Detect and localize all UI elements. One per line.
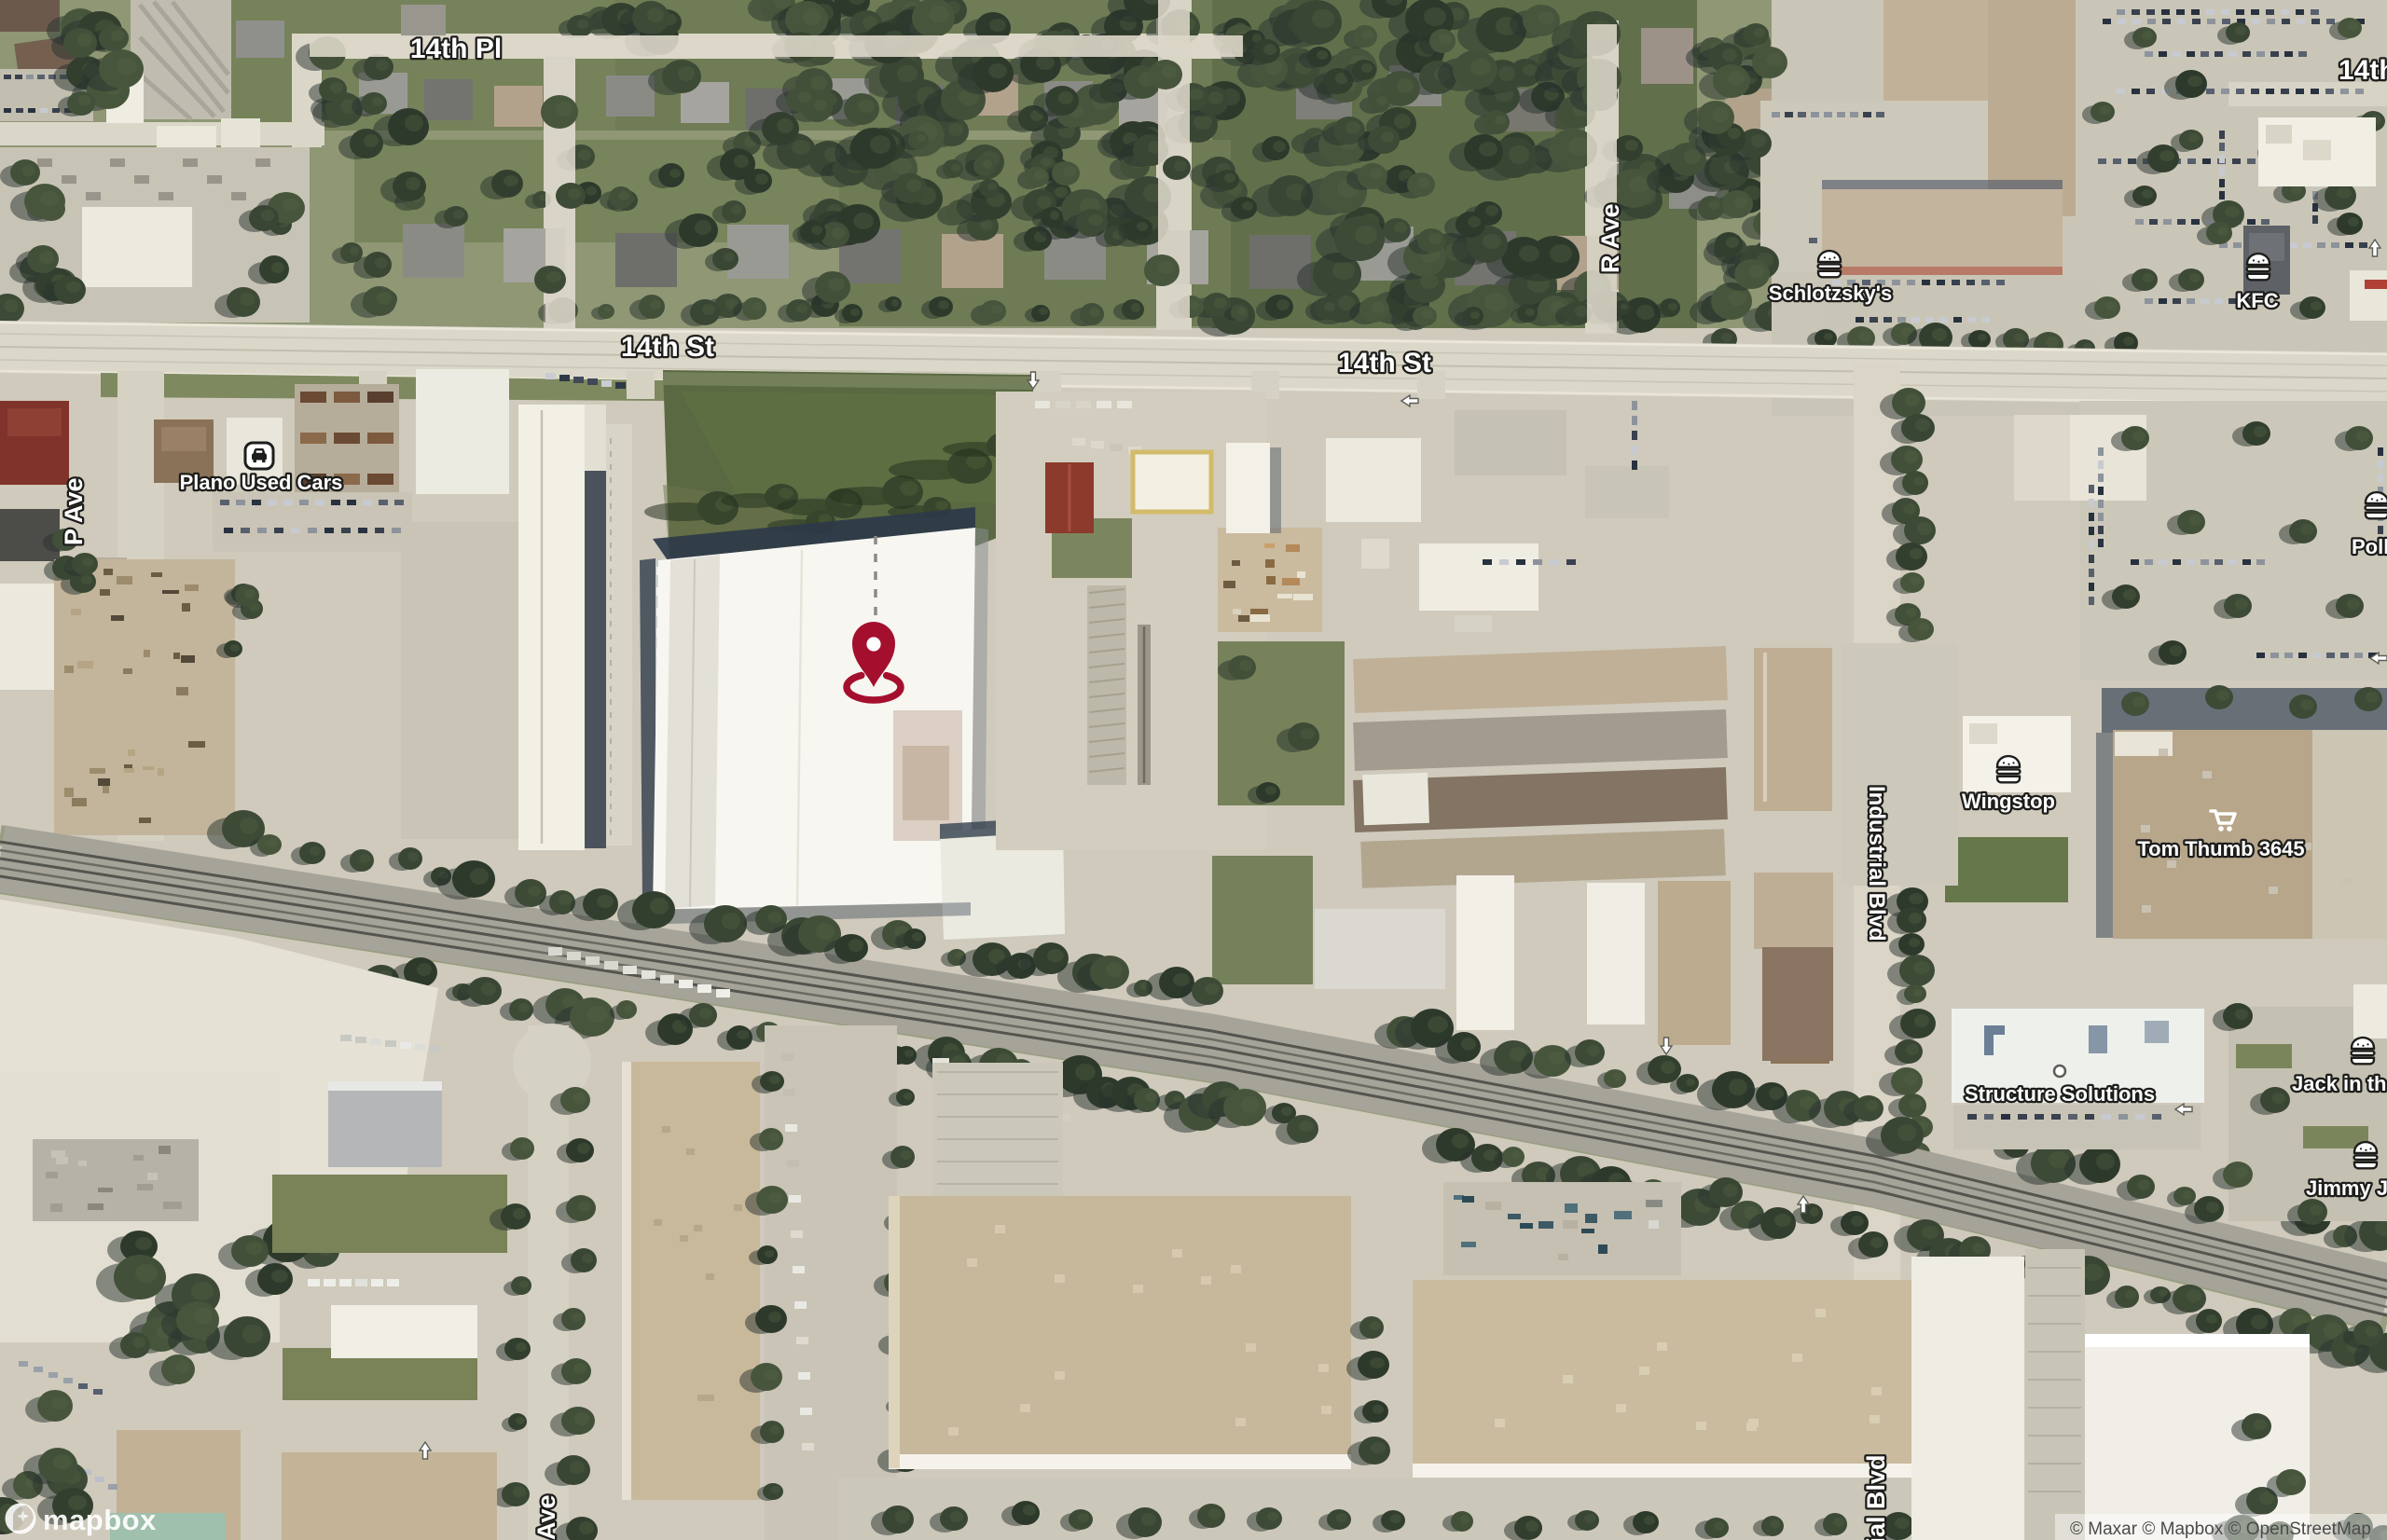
svg-text:Structure Solutions: Structure Solutions	[1965, 1082, 2155, 1106]
svg-text:14th St: 14th St	[1338, 348, 1431, 378]
svg-text:14th Pl: 14th Pl	[2339, 55, 2387, 86]
svg-text:Industrial Blvd: Industrial Blvd	[1864, 786, 1889, 942]
svg-text:KFC: KFC	[2236, 289, 2278, 312]
svg-text:Ave: Ave	[532, 1494, 560, 1540]
svg-text:Plano Used Cars: Plano Used Cars	[180, 471, 343, 494]
svg-text:mapbox: mapbox	[43, 1504, 157, 1536]
svg-text:Jimmy Jo: Jimmy Jo	[2306, 1176, 2387, 1200]
svg-text:14th St: 14th St	[621, 332, 714, 363]
svg-text:© Maxar © Mapbox © OpenStreetM: © Maxar © Mapbox © OpenStreetMap	[2070, 1519, 2371, 1539]
svg-text:R Ave: R Ave	[1596, 203, 1624, 273]
svg-text:Tom Thumb 3645: Tom Thumb 3645	[2137, 837, 2304, 860]
svg-text:Schlotzsky's: Schlotzsky's	[1769, 282, 1892, 305]
svg-text:14th Pl: 14th Pl	[410, 34, 502, 64]
svg-text:Jack in the: Jack in the	[2292, 1072, 2387, 1095]
svg-text:Wingstop: Wingstop	[1962, 790, 2055, 813]
svg-text:Industrial Blvd: Industrial Blvd	[1862, 1454, 1890, 1540]
svg-text:P Ave: P Ave	[60, 477, 88, 545]
svg-text:Pollo R: Pollo R	[2352, 535, 2387, 558]
